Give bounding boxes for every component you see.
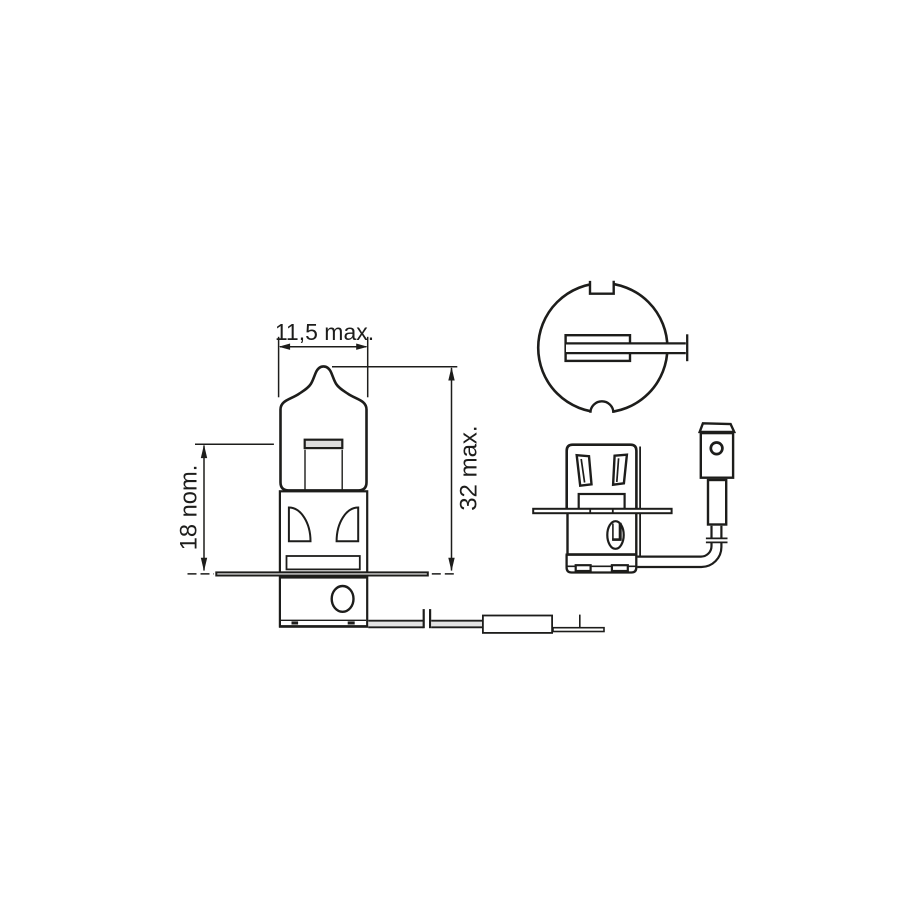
svg-text:18 nom.: 18 nom. (176, 465, 202, 551)
svg-text:11,5 max.: 11,5 max. (275, 319, 374, 345)
svg-text:32 max.: 32 max. (455, 425, 482, 510)
